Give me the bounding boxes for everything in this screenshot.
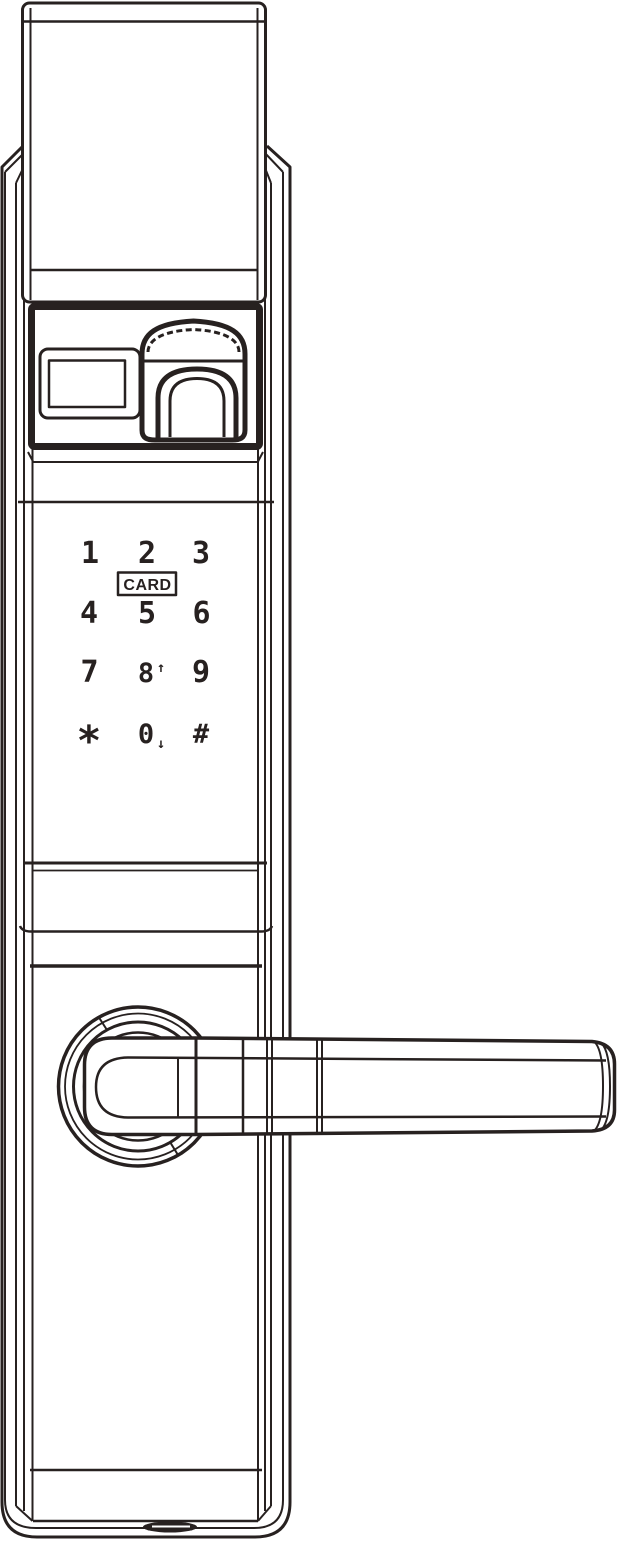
- keypad: 1 2 3 CARD 4 5 6 7 8 ↑ 9 * 0 ↓ #: [77, 536, 211, 765]
- keypad-key-star[interactable]: *: [77, 717, 102, 765]
- handle-lever[interactable]: [85, 1038, 615, 1135]
- display-window: [40, 349, 140, 418]
- keypad-key-5[interactable]: 5: [138, 596, 156, 631]
- keypad-key-8[interactable]: 8 ↑: [138, 658, 165, 689]
- fingerprint-window-inner: [170, 379, 224, 438]
- keypad-key-8-label: 8: [138, 658, 154, 689]
- keyhole-cover[interactable]: [143, 1522, 197, 1533]
- keypad-key-7[interactable]: 7: [80, 655, 98, 690]
- divider-line: [20, 926, 272, 932]
- up-arrow-icon: ↑: [157, 660, 165, 676]
- sensor-panel: [32, 307, 260, 447]
- top-cap-outline: [23, 3, 266, 302]
- card-reader-zone[interactable]: CARD: [118, 573, 176, 596]
- rosette-knurl-tick: [98, 1016, 107, 1030]
- keypad-key-0-label: 0: [138, 719, 154, 750]
- display-inner: [49, 361, 125, 408]
- keypad-key-hash[interactable]: #: [193, 719, 210, 750]
- keypad-key-6[interactable]: 6: [192, 596, 210, 631]
- handle: [59, 1007, 615, 1166]
- upper-divider-band: [18, 452, 274, 502]
- lock-drawing: 1 2 3 CARD 4 5 6 7 8 ↑ 9 * 0 ↓ #: [0, 0, 617, 1541]
- keypad-key-9[interactable]: 9: [192, 655, 210, 690]
- keypad-key-2[interactable]: 2: [138, 536, 156, 571]
- card-label: CARD: [123, 577, 171, 594]
- keypad-key-1[interactable]: 1: [81, 536, 99, 571]
- keypad-key-3[interactable]: 3: [192, 536, 210, 571]
- fingerprint-scanner[interactable]: [142, 321, 245, 440]
- fingerprint-cover-arc: [148, 330, 239, 353]
- lever-outline: [85, 1038, 615, 1135]
- door-lock-diagram: 1 2 3 CARD 4 5 6 7 8 ↑ 9 * 0 ↓ #: [0, 0, 617, 1541]
- top-cap: [23, 3, 266, 302]
- keypad-key-0[interactable]: 0 ↓: [138, 719, 165, 752]
- down-arrow-icon: ↓: [157, 736, 165, 752]
- keypad-key-4[interactable]: 4: [80, 596, 98, 631]
